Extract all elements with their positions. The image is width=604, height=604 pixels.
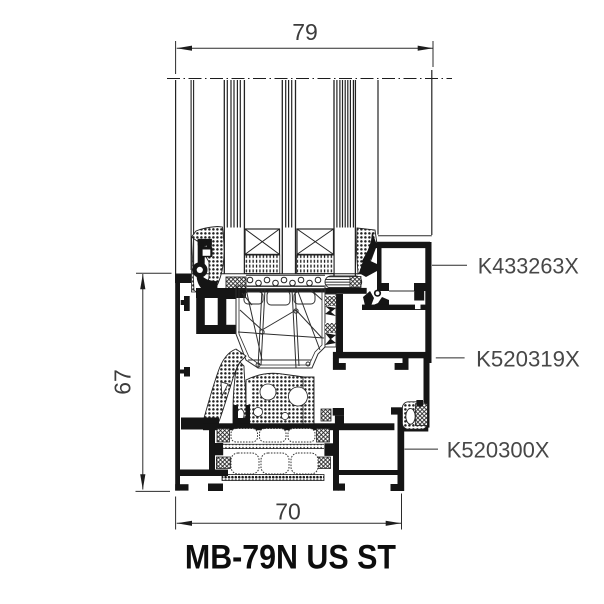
svg-text:K433263X: K433263X bbox=[478, 253, 579, 278]
svg-text:79: 79 bbox=[292, 19, 318, 45]
svg-text:MB-79N US ST: MB-79N US ST bbox=[185, 539, 396, 577]
svg-text:K520300X: K520300X bbox=[447, 438, 550, 463]
svg-text:67: 67 bbox=[110, 369, 136, 395]
svg-text:70: 70 bbox=[275, 499, 301, 525]
svg-text:K520319X: K520319X bbox=[476, 347, 580, 372]
